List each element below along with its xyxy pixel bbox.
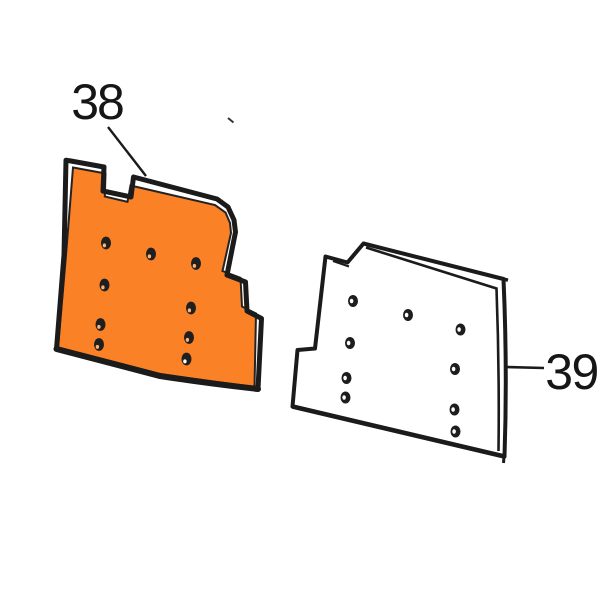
svg-text:38: 38 bbox=[71, 74, 123, 130]
svg-text:39: 39 bbox=[545, 344, 598, 400]
